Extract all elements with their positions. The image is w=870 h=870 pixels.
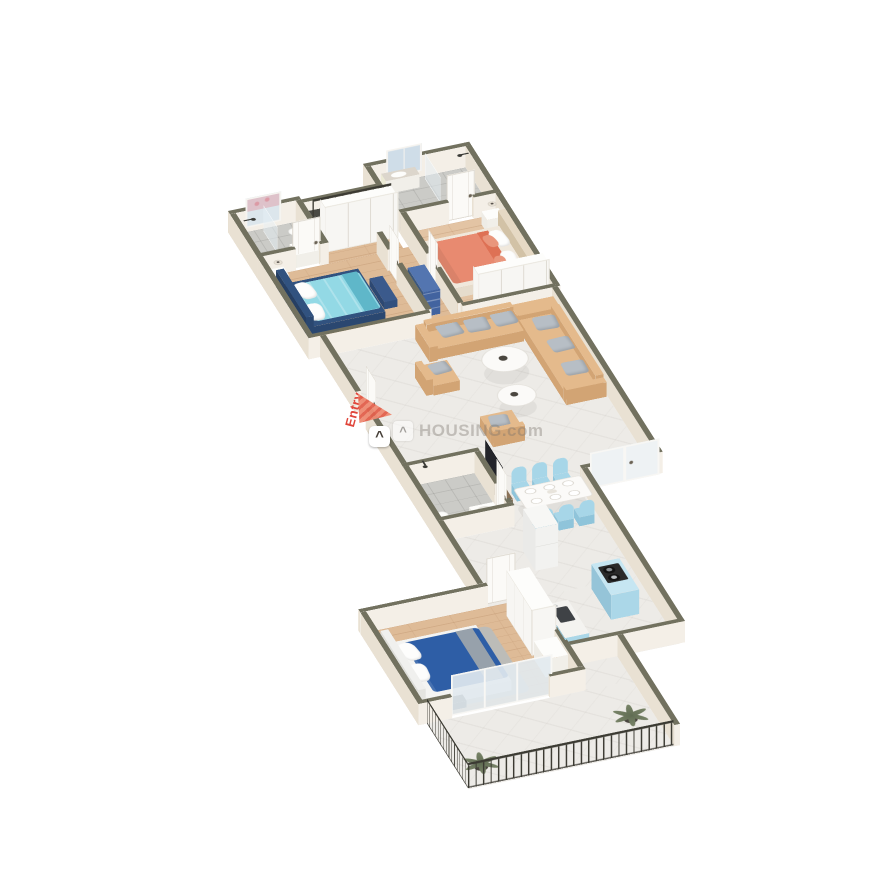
- dining-chair-back: [532, 461, 547, 480]
- floorplan-3d-render: Entry ^ ^ HOUSING.com: [0, 0, 870, 870]
- entry-direction-icon: ^: [369, 426, 390, 447]
- dining-chair-back: [511, 465, 526, 484]
- bed-a-bench-sface: [384, 299, 397, 309]
- watermark-text: HOUSING.com: [419, 421, 544, 441]
- door: [447, 170, 475, 222]
- fridge-seam: [535, 524, 558, 571]
- sofa-n-arm-sface: [430, 346, 438, 363]
- armchair-1-back-sface: [426, 379, 433, 396]
- wall-sface: [674, 724, 680, 746]
- dining-chair-back: [553, 457, 568, 476]
- dining-chair-back: [559, 503, 574, 522]
- dining-chair-back: [579, 499, 594, 518]
- watermark: ^ HOUSING.com: [393, 421, 544, 441]
- wall-sface: [320, 242, 328, 265]
- floorplan-plan-3d: [107, 156, 870, 820]
- watermark-logo-icon: ^: [393, 421, 413, 441]
